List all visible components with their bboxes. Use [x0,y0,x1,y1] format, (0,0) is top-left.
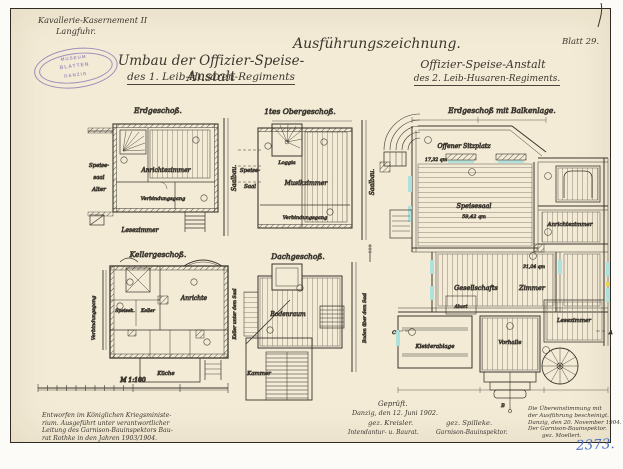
plan-dachgeschoss: Dachgeschoß. Bodenraum Boden über dem Sa… [244,244,372,400]
room-label: Speise- [89,163,109,169]
room-label: Musikzimmer [284,180,329,187]
room-label: Keller [140,308,156,314]
approval-title: Geprüft. [378,400,408,408]
room-label: Vorhalle [498,340,522,346]
plan-hauptplan-title: Erdgeschoß mit Balkenlage. [447,106,556,115]
room-label: Speisesaal [457,202,492,210]
certification-line4: Der Garnison-Bauinspektor. [528,426,622,433]
signature-1-role: Intendantur- u. Baurat. [348,429,419,436]
room-label: Verbindungsgang [91,296,97,341]
corner-pen-mark [598,3,602,27]
design-note-line4: rat Rothke in den Jahren 1903/1904. [42,435,173,443]
approval-place-date: Danzig, den 12. Juni 1902. [352,409,438,417]
plan-dachgeschoss-title: Dachgeschoß. [270,252,325,261]
area-label: 17,32 qm [425,157,448,163]
section-letter: A [608,330,613,336]
area-label: 31,04 qm [523,264,546,270]
plan-obergeschoss: 1tes Obergeschoß. Loggia Speise- Saal Mu… [238,107,376,240]
design-note-line2: rium. Ausgeführt unter verantwortlicher [42,420,173,428]
room-label: Zimmer [518,284,546,292]
scale-label: M 1:100 [119,377,146,384]
plan-erdgeschoss-title: Erdgeschoß. [133,106,182,115]
signature-2-role: Garnison-Bauinspektor. [436,429,507,436]
room-label: Saalbau. [231,165,238,191]
certification-line1: Die Übereinstimmung mit [528,406,622,413]
room-label: Kammer [246,371,271,377]
area-label: 59,42 qm [462,214,486,220]
room-label: Alter [91,187,106,193]
plan-erdgeschoss: Erdgeschoß. Speise- saal Alter Anric [88,106,238,236]
inventory-number: 2373. [576,436,615,454]
room-label: Speise- [240,168,260,174]
room-label: Abort [453,304,467,310]
room-label: Boden über dem Saal [362,292,368,344]
room-label: Anrichtezimmer [547,222,593,228]
room-label: Offener Sitzplatz [437,143,491,150]
signature-2: gez. Spilleke. [446,419,492,427]
room-label: Lesezimmer [556,318,591,324]
design-note-line3: Leitung des Garnison-Bauinspektors Bau- [42,427,173,435]
certification-line3: Danzig, den 20. November 1904. [528,420,622,427]
scale-bar: M 1:100 [38,377,228,393]
room-label: Keller unter dem Saal [232,288,238,341]
certification-line2: der Ausführung bescheinigt. [528,413,622,420]
section-letter: C [392,330,396,336]
plan-kellergeschoss-title: Kellergeschoß. [129,250,187,259]
room-label: Anrichte [180,295,208,302]
room-label: Verbindungsgang [141,196,186,202]
certification-note: Die Übereinstimmung mit der Ausführung b… [528,406,622,440]
section-letter: B [500,403,505,409]
room-label: Loggia [277,160,295,166]
design-note-line1: Entworfen im Königlichen Kriegsministe- [42,412,173,420]
plan-hauptplan: Erdgeschoß mit Balkenlage. [380,106,613,413]
signature-1: gez. Kreisler. [368,419,413,427]
room-label: Bodenraum [269,311,306,318]
room-label: Küche [156,371,175,377]
design-note: Entworfen im Königlichen Kriegsministe- … [42,412,173,442]
room-label: Saal [244,184,256,190]
room-label: Lesezimmer [120,227,159,234]
room-label: Gesellschafts [454,284,498,292]
plan-obergeschoss-title: 1tes Obergeschoß. [264,107,335,116]
room-label: saal [93,175,104,181]
room-label: Saalbau. [369,169,376,195]
room-label: Verbindungsgang [283,215,328,221]
room-label: Anrichtezimmer [140,167,191,174]
drawing-sheet: Kavallerie-Kasernement II Langfuhr. Umba… [0,0,623,469]
room-label: Kleiderablage [415,344,456,350]
plan-kellergeschoss: Kellergeschoß. Spei [91,250,238,382]
room-label: Speisek. [115,308,135,314]
plans-drawing: Erdgeschoß. Speise- saal Alter Anric [0,0,623,469]
